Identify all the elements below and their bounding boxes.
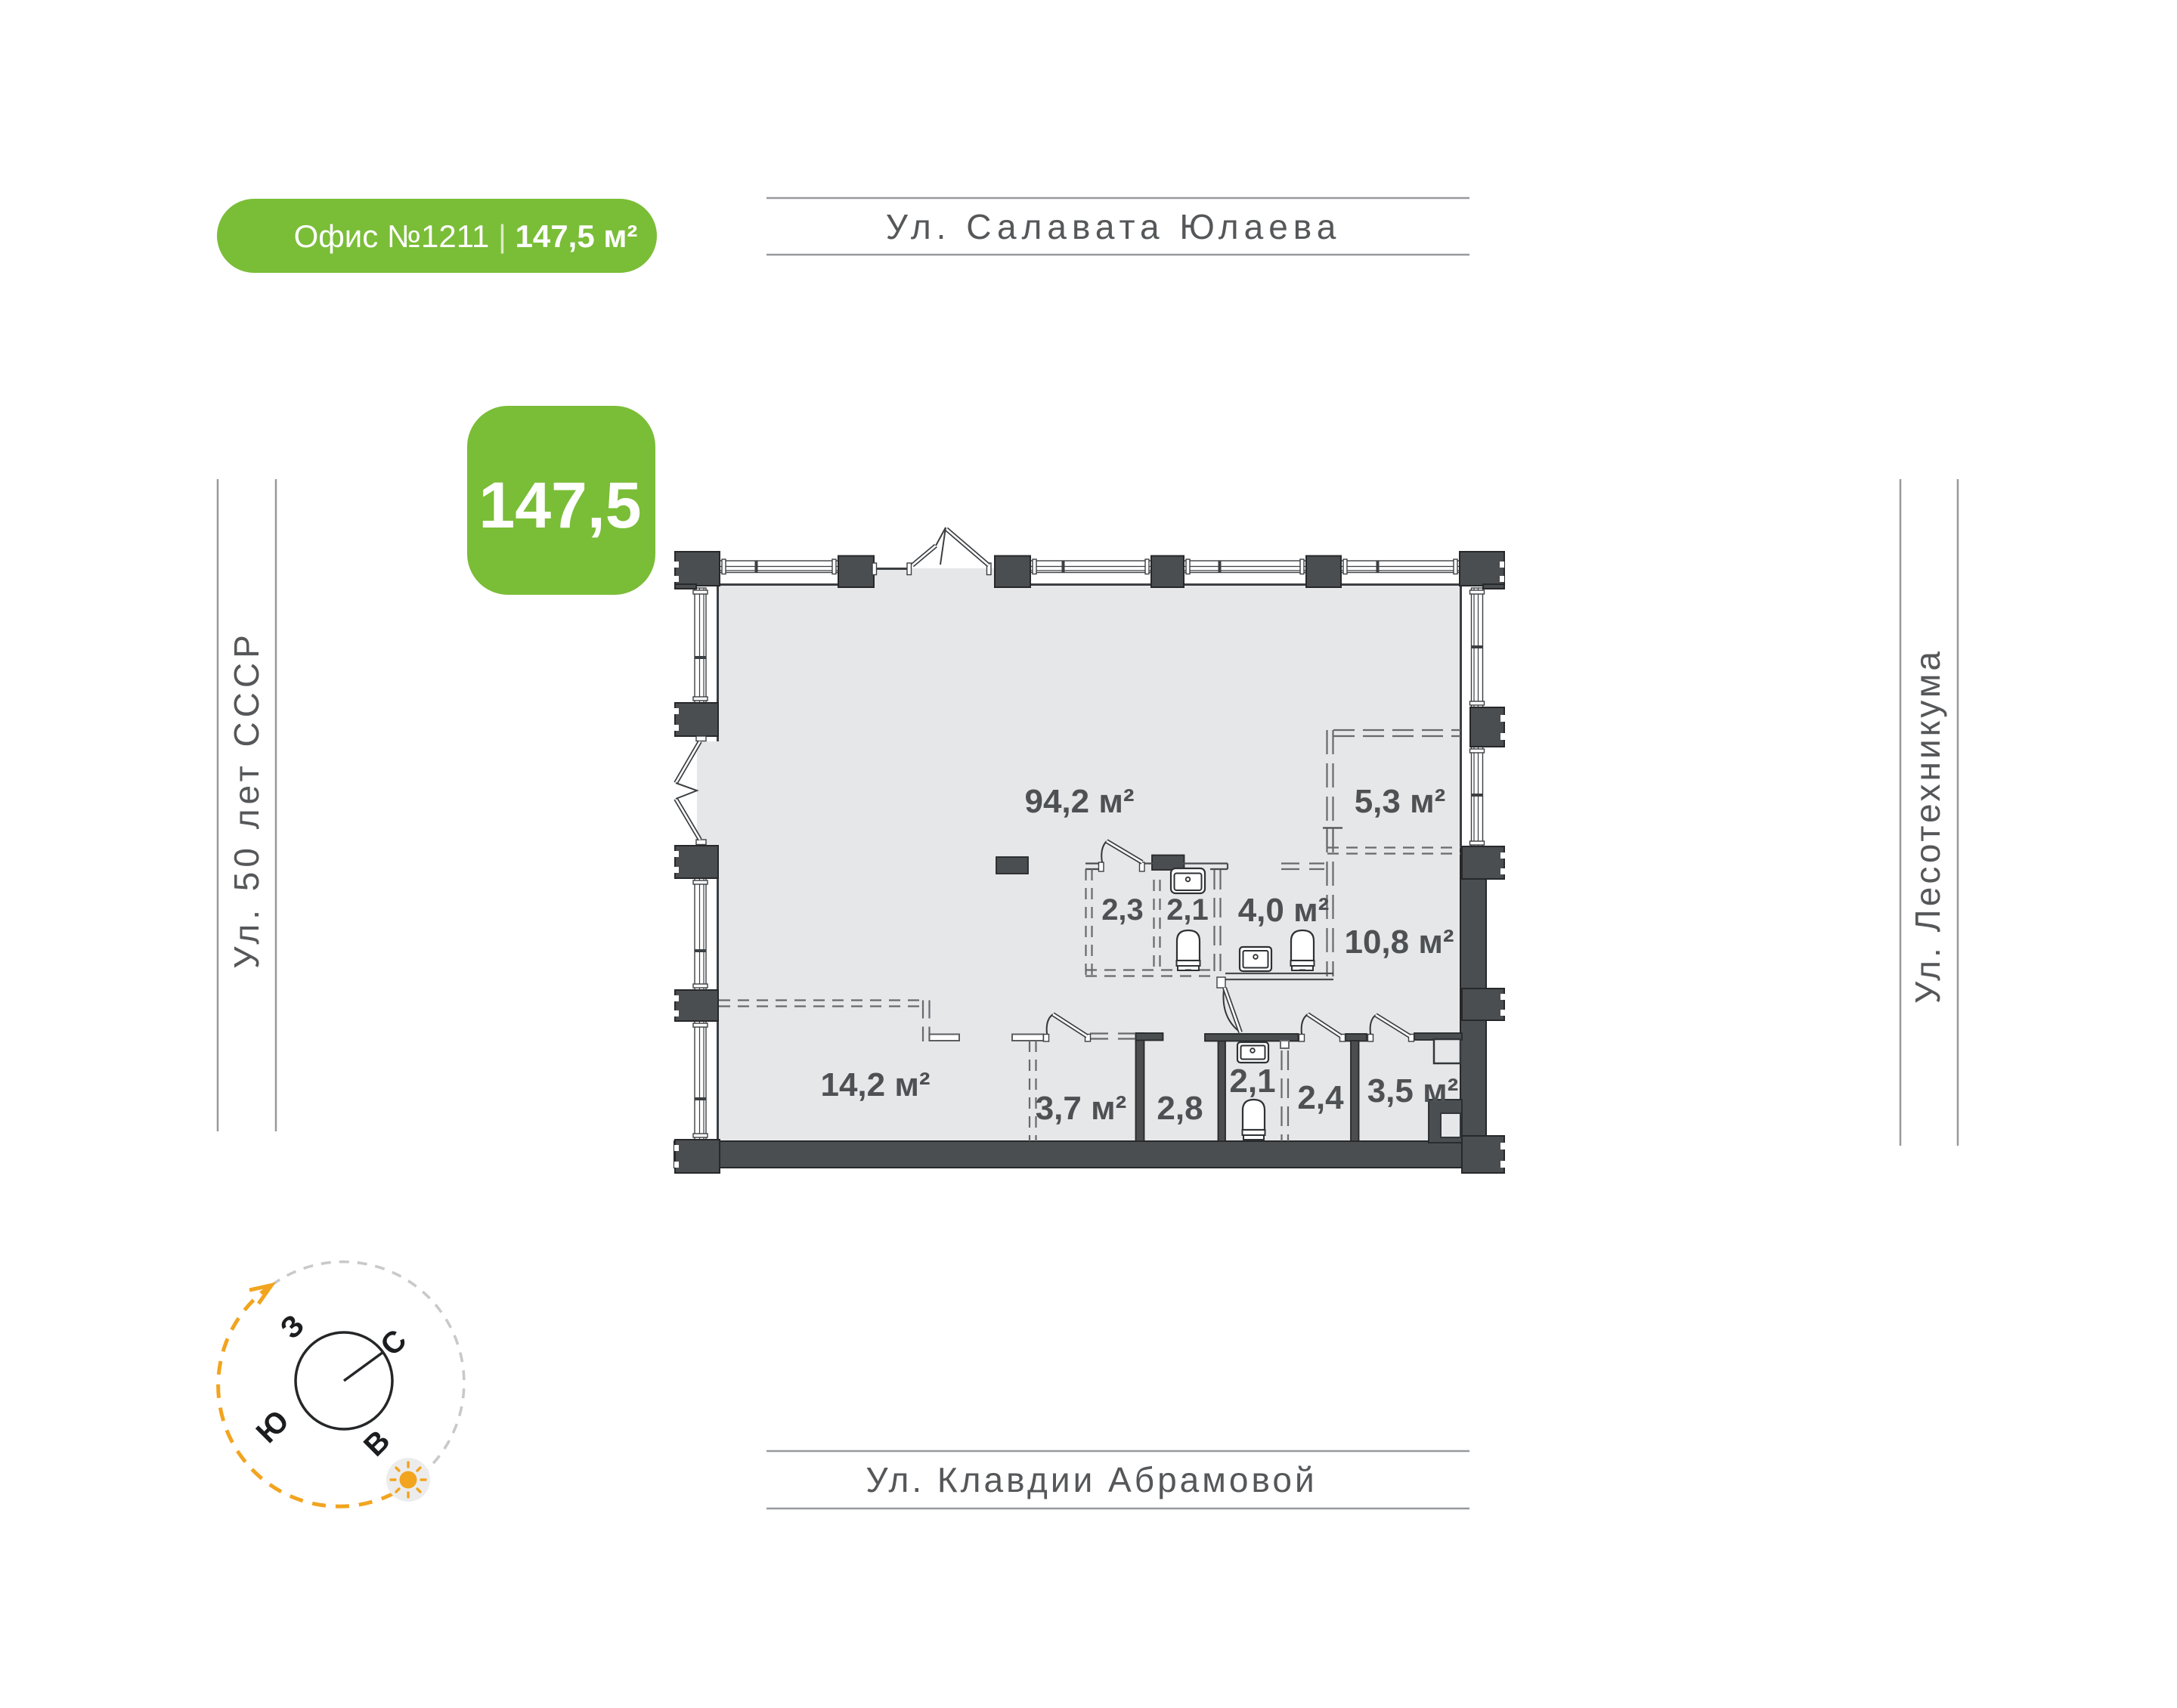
svg-text:147,5: 147,5 (478, 469, 641, 542)
svg-text:Ул. Клавдии Абрамовой: Ул. Клавдии Абрамовой (866, 1460, 1317, 1499)
svg-text:14,2 м²: 14,2 м² (820, 1066, 930, 1103)
svg-text:3,5 м²: 3,5 м² (1367, 1072, 1459, 1109)
svg-text:Ул. Салавата Юлаева: Ул. Салавата Юлаева (886, 207, 1342, 246)
svg-text:2,1: 2,1 (1166, 893, 1209, 927)
svg-text:Ю: Ю (250, 1404, 296, 1450)
svg-text:Ул. 50 лет СССР: Ул. 50 лет СССР (227, 630, 266, 969)
svg-text:Ул. Лесотехникума: Ул. Лесотехникума (1908, 648, 1947, 1004)
svg-text:З: З (274, 1308, 311, 1345)
svg-text:5,3 м²: 5,3 м² (1355, 783, 1446, 820)
svg-text:94,2 м²: 94,2 м² (1024, 783, 1134, 820)
svg-text:2,4: 2,4 (1297, 1079, 1344, 1116)
svg-text:2,8: 2,8 (1157, 1090, 1203, 1127)
svg-text:2,1: 2,1 (1229, 1063, 1275, 1100)
svg-text:Офис №1211 | 147,5 м²: Офис №1211 | 147,5 м² (294, 218, 638, 254)
svg-text:В: В (358, 1424, 397, 1463)
svg-text:4,0 м²: 4,0 м² (1238, 892, 1330, 929)
svg-text:10,8 м²: 10,8 м² (1344, 924, 1454, 961)
svg-text:3,7 м²: 3,7 м² (1036, 1090, 1127, 1127)
svg-text:2,3: 2,3 (1101, 893, 1144, 927)
